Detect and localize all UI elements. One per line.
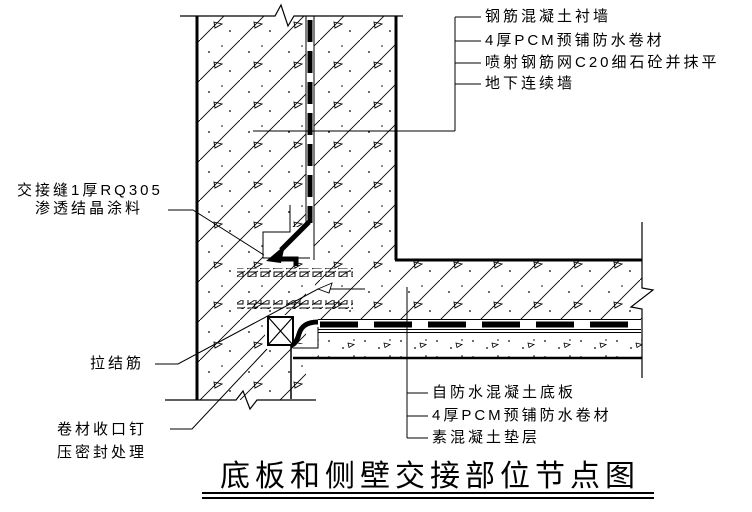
- callout-lining-wall: 钢筋混凝土衬墙: [485, 8, 611, 26]
- callout-slab-membrane: 4厚PCM预铺防水卷材: [432, 407, 612, 425]
- title-underline-bottom: [202, 497, 654, 499]
- callout-membrane-seal-line2: 压密封处理: [57, 444, 147, 462]
- callout-base-slab: 自防水混凝土底板: [432, 384, 576, 402]
- callout-cushion-layer: 素混凝土垫层: [432, 429, 540, 447]
- title-underline-top: [202, 492, 654, 494]
- callout-shotcrete-layer: 喷射钢筋网C20细石砼并抹平: [485, 54, 720, 72]
- callout-wall-membrane: 4厚PCM预铺防水卷材: [485, 32, 665, 50]
- callout-diaphragm-wall: 地下连续墙: [485, 75, 575, 93]
- tie-bar-row-upper: [237, 268, 353, 277]
- drawing-title: 底板和侧壁交接部位节点图: [160, 451, 700, 495]
- detail-drawing-sheet: 钢筋混凝土衬墙 4厚PCM预铺防水卷材 喷射钢筋网C20细石砼并抹平 地下连续墙…: [0, 0, 752, 512]
- cushion-stipple: [318, 332, 642, 357]
- lining-wall-hatch: [314, 16, 396, 260]
- callout-membrane-seal-line1: 卷材收口钉: [57, 421, 147, 439]
- callout-joint-seam-line1: 交接缝1厚RQ305: [17, 182, 163, 200]
- callout-tie-bar: 拉结筋: [90, 355, 144, 373]
- callout-joint-seam-line2: 渗透结晶涂料: [35, 200, 143, 218]
